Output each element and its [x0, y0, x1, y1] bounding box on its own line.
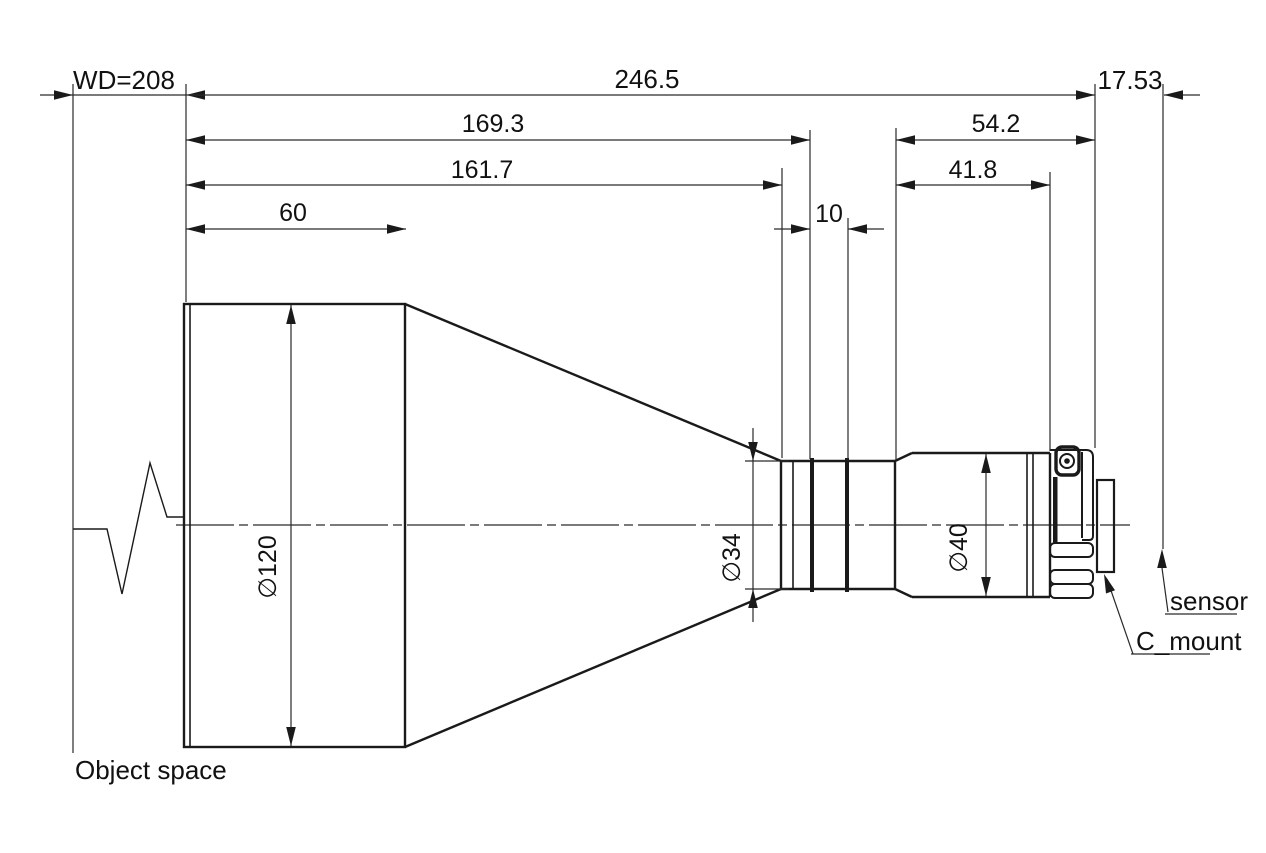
extension-lines — [73, 84, 1163, 753]
grip-ring — [1050, 570, 1093, 584]
dim-169-value: 169.3 — [462, 110, 525, 138]
dim-front-to-stop: 169.3 — [186, 110, 810, 145]
c-mount-flange — [1097, 480, 1114, 572]
dim-41-value: 41.8 — [949, 156, 998, 184]
arrowhead — [981, 577, 991, 596]
arrowhead — [896, 135, 915, 145]
dim-d120-value: ∅120 — [254, 535, 282, 599]
grip-ring — [1050, 584, 1093, 598]
dim-flange-to-sensor: 17.53 — [1097, 65, 1200, 100]
arrowhead — [763, 180, 782, 190]
arrowhead — [981, 454, 991, 473]
dim-rear-barrel: 41.8 — [896, 156, 1050, 190]
dim-front-barrel: 60 — [186, 199, 406, 234]
arrowhead — [286, 305, 296, 324]
arrowhead — [186, 224, 205, 234]
arrowhead — [791, 224, 810, 234]
dim-161-value: 161.7 — [451, 156, 514, 184]
sensor-label: sensor — [1170, 586, 1248, 616]
dim-stop-ring: 10 — [774, 200, 884, 234]
arrowhead — [186, 135, 205, 145]
dim-total-value: 246.5 — [614, 64, 679, 94]
clamp-slot — [1053, 477, 1058, 543]
arrowhead — [791, 135, 810, 145]
dim-d34-value: ∅34 — [718, 533, 746, 583]
arrowhead — [1076, 135, 1095, 145]
arrowhead — [1164, 90, 1183, 100]
dim-wd-value: WD=208 — [73, 65, 175, 95]
lens-technical-drawing: WD=208 246.5 17.53 169.3 54.2 161.7 — [0, 0, 1266, 853]
arrowhead — [896, 180, 915, 190]
sensor-callout: sensor — [1157, 549, 1248, 616]
object-space-callout: Object space — [75, 755, 227, 785]
dim-60-value: 60 — [279, 199, 307, 227]
object-plane-break-symbol — [73, 463, 184, 594]
dim-sensor-value: 17.53 — [1097, 65, 1162, 95]
arrowhead — [1104, 574, 1115, 594]
lens-technical-drawing-page: WD=208 246.5 17.53 169.3 54.2 161.7 — [0, 0, 1266, 853]
lock-screw-center — [1064, 458, 1070, 464]
dim-total-length: 246.5 — [186, 64, 1095, 100]
dim-rear-assembly: 54.2 — [896, 110, 1095, 145]
dim-10-value: 10 — [815, 200, 843, 228]
arrowhead — [1157, 549, 1167, 568]
arrowhead — [54, 90, 73, 100]
arrowhead — [286, 727, 296, 746]
arrowhead — [1076, 90, 1095, 100]
c-mount-label: C_mount — [1136, 626, 1242, 656]
grip-ring — [1050, 543, 1093, 557]
arrowhead — [848, 224, 867, 234]
arrowhead — [1031, 180, 1050, 190]
arrowhead — [186, 180, 205, 190]
dim-d40-value: ∅40 — [945, 523, 973, 573]
clamp-section — [1050, 447, 1093, 598]
dim-working-distance: WD=208 — [40, 65, 205, 100]
dim-54-value: 54.2 — [972, 110, 1021, 138]
dim-front-to-tube: 161.7 — [186, 156, 782, 190]
arrowhead — [387, 224, 406, 234]
object-space-label: Object space — [75, 755, 227, 785]
